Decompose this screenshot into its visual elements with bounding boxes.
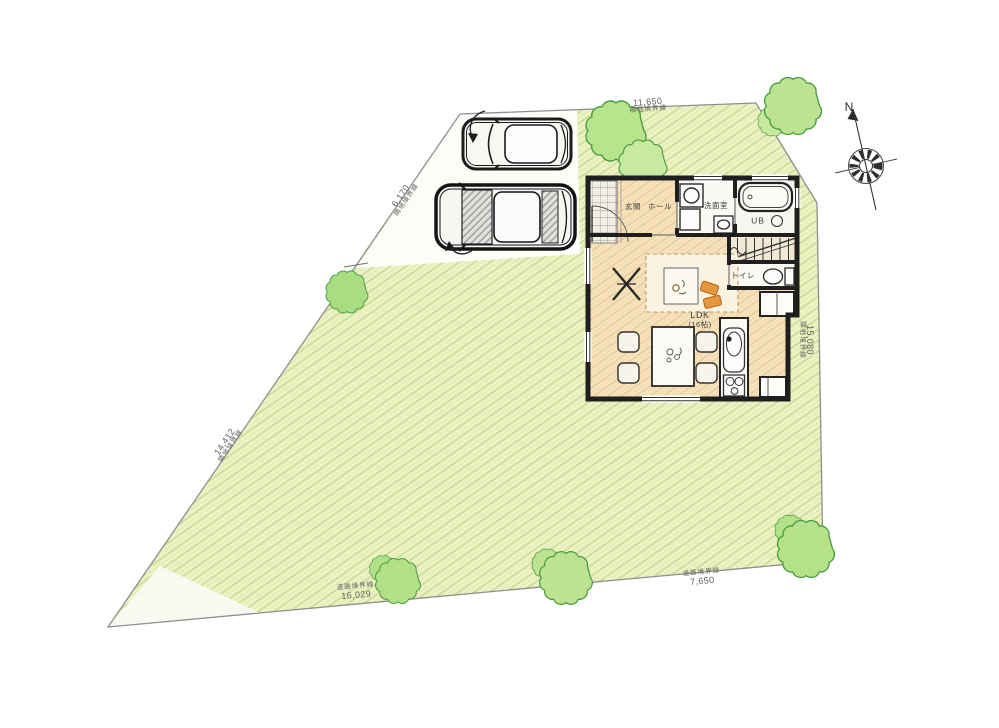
window (694, 175, 722, 182)
site-plan-drawing (0, 0, 999, 728)
toilet-fixture (764, 268, 795, 285)
kitchen-counter (720, 318, 748, 398)
storage-closet (760, 292, 794, 316)
kitchen-stove (724, 375, 745, 396)
tree (778, 521, 835, 578)
coffee-table (664, 268, 698, 304)
refrigerator (760, 377, 786, 397)
window (794, 188, 801, 208)
dining-chair (696, 363, 717, 383)
dining-chair (696, 332, 717, 352)
tree (376, 559, 421, 604)
tree (326, 271, 368, 313)
tree (540, 552, 593, 605)
dining-chair (618, 363, 639, 383)
window (585, 332, 592, 362)
compass-rose (835, 109, 897, 210)
window (642, 396, 700, 403)
bathtub (739, 183, 792, 211)
window (585, 248, 592, 284)
car-2 (436, 183, 575, 254)
car-1 (463, 111, 571, 170)
dining-table (652, 327, 694, 386)
kitchen-sink (724, 328, 745, 372)
wash-basin (714, 216, 733, 233)
house-floor-plan (585, 175, 801, 403)
tree (765, 78, 822, 135)
washing-machine (680, 184, 703, 230)
bath-stool (772, 216, 783, 227)
dining-chair (618, 332, 639, 352)
site-plan-page: 11,650 隣地境界線 6,170 隣地境界線 14,412 隣地境界線 15… (0, 0, 999, 728)
window (752, 175, 788, 182)
